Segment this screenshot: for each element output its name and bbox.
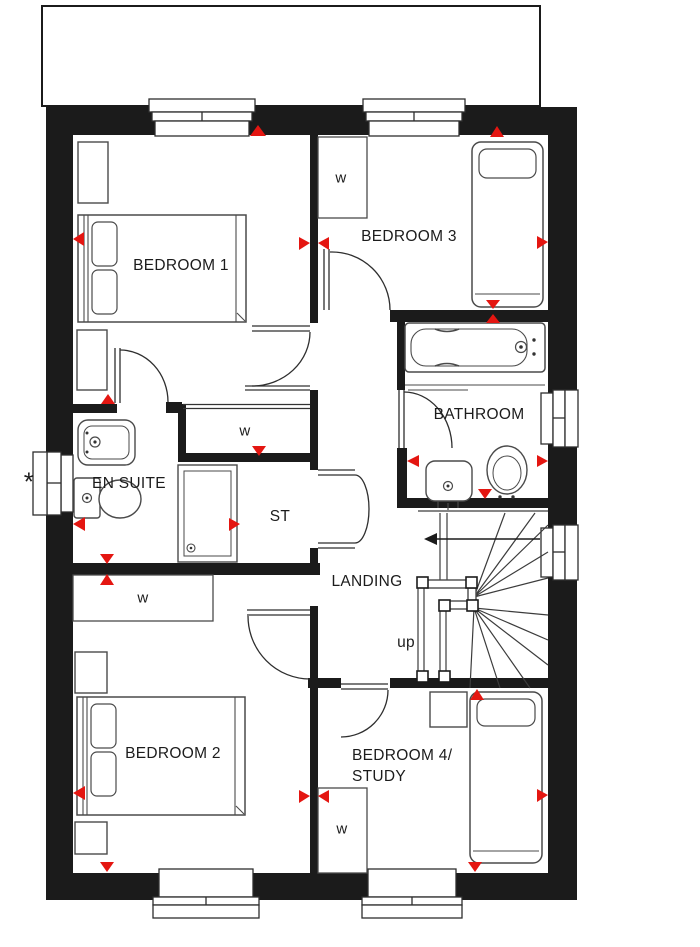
door-bifold-icon-store — [318, 470, 369, 548]
desk-icon-bedroom4 — [430, 692, 467, 727]
window-icon-bedroom1-top — [149, 99, 255, 136]
door-swing-icon-bedroom4 — [341, 684, 388, 737]
wardrobe-label-bedroom4: w — [336, 821, 347, 838]
chest-icon-bedroom2-top — [75, 652, 107, 693]
room-label-bedroom1: BEDROOM 1 — [133, 257, 229, 275]
adjoining-building-outline — [42, 6, 540, 106]
room-label-store: ST — [270, 508, 290, 526]
basin-icon-ensuite — [78, 420, 135, 465]
chest-icon-bedroom2-bottom — [75, 822, 107, 854]
up-direction-arrow-icon — [424, 533, 540, 545]
dimension-marker-icon — [299, 790, 310, 803]
door-swing-icon-bedroom2 — [247, 610, 310, 679]
floor-plan-drawing — [0, 0, 700, 947]
room-label-bedroom4-line2: STUDY — [352, 768, 406, 786]
dimension-marker-icon — [318, 237, 329, 250]
room-label-bedroom3: BEDROOM 3 — [361, 228, 457, 246]
shower-icon — [178, 465, 237, 562]
partition-lines — [183, 386, 310, 409]
room-label-bedroom2: BEDROOM 2 — [125, 745, 221, 763]
window-icon-bedroom4-bottom — [362, 869, 462, 918]
door-swing-icon-bedroom3 — [324, 249, 390, 310]
room-label-bathroom: BATHROOM — [434, 406, 525, 424]
dimension-marker-icon — [407, 455, 419, 467]
stairs-up-label: up — [397, 634, 415, 652]
window-icon-bedroom3-top — [363, 99, 465, 136]
staircase-icon — [417, 511, 548, 688]
door-swing-icon-ensuite — [115, 348, 168, 403]
toilet-icon-bathroom — [487, 446, 527, 499]
window-icon-bedroom2-bottom — [153, 869, 259, 918]
room-label-ensuite: EN SUITE — [92, 475, 166, 493]
chest-icon-bedroom1-side — [77, 330, 107, 390]
floor-plan: BEDROOM 1 BEDROOM 3 BEDROOM 2 BEDROOM 4/… — [0, 0, 700, 947]
dimension-marker-icon — [100, 554, 114, 564]
door-swing-icon-bedroom1 — [252, 326, 310, 386]
window-note-asterisk: * — [24, 467, 34, 498]
bath-icon — [405, 323, 545, 390]
dimension-marker-icon — [468, 862, 482, 872]
room-label-landing: LANDING — [331, 573, 402, 591]
window-icon-ensuite-left — [33, 452, 73, 515]
single-bed-icon-bedroom3 — [472, 142, 543, 307]
single-bed-icon-bedroom4 — [470, 692, 542, 863]
wardrobe-label-closet: w — [239, 423, 250, 440]
window-icon-bathroom-right — [541, 390, 578, 447]
dimension-marker-icon — [73, 517, 85, 531]
room-label-bedroom4-line1: BEDROOM 4/ — [352, 747, 452, 765]
dimension-marker-icon — [299, 237, 310, 250]
dimension-marker-icon — [478, 489, 492, 499]
dimension-marker-icon — [100, 862, 114, 872]
dimension-marker-icon — [101, 394, 115, 404]
dimension-marker-icon — [537, 455, 548, 467]
wardrobe-label-bedroom2: w — [137, 590, 148, 607]
chest-icon-bedroom1-top — [78, 142, 108, 203]
wardrobe-label-bedroom3: w — [335, 170, 346, 187]
